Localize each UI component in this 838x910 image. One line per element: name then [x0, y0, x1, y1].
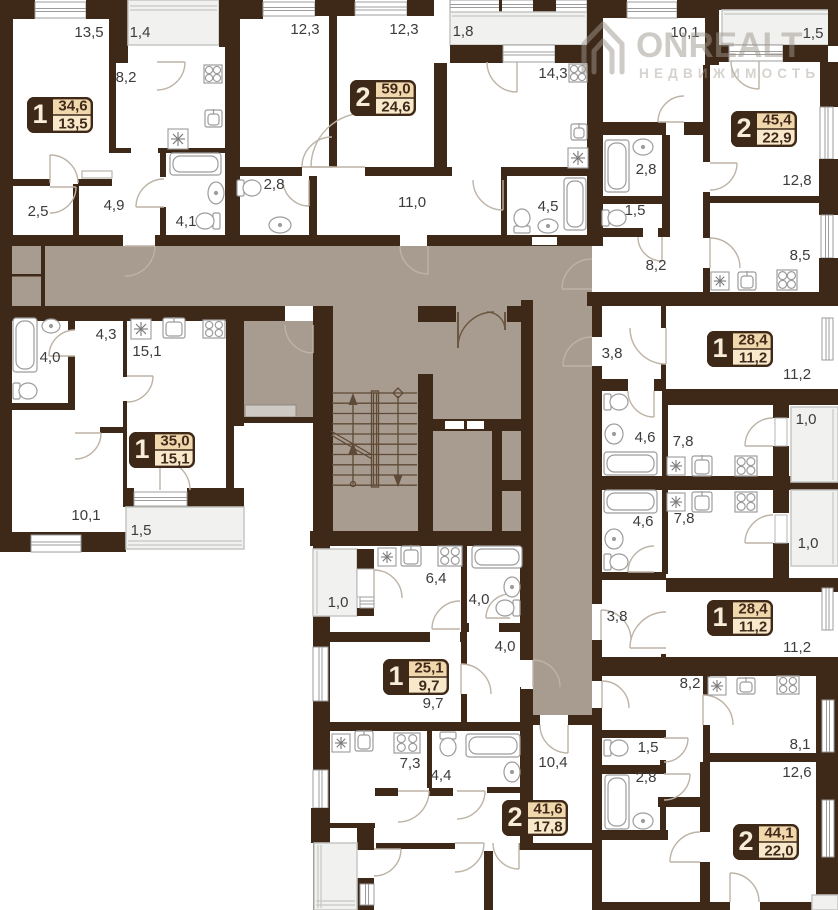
- svg-text:1,4: 1,4: [130, 24, 151, 41]
- svg-text:17,8: 17,8: [533, 818, 562, 835]
- svg-text:12,8: 12,8: [782, 172, 811, 189]
- svg-text:10,1: 10,1: [71, 507, 100, 524]
- svg-text:13,5: 13,5: [58, 115, 87, 132]
- svg-text:2: 2: [355, 82, 370, 112]
- svg-text:28,4: 28,4: [738, 332, 768, 349]
- svg-text:2: 2: [507, 802, 522, 832]
- svg-text:45,4: 45,4: [762, 112, 792, 129]
- svg-text:12,3: 12,3: [389, 21, 418, 38]
- svg-text:9,7: 9,7: [419, 677, 440, 694]
- svg-text:6,4: 6,4: [426, 570, 447, 587]
- svg-text:4,0: 4,0: [469, 591, 490, 608]
- svg-text:2: 2: [738, 826, 753, 856]
- svg-text:14,3: 14,3: [538, 65, 567, 82]
- svg-text:1: 1: [388, 661, 403, 691]
- svg-text:9,7: 9,7: [423, 695, 444, 712]
- svg-text:1,5: 1,5: [638, 739, 659, 756]
- svg-text:10,4: 10,4: [538, 754, 567, 771]
- svg-text:22,9: 22,9: [762, 129, 791, 146]
- svg-text:2: 2: [736, 113, 751, 143]
- svg-text:7,8: 7,8: [674, 510, 695, 527]
- svg-text:НЕДВИЖИМОСТЬ: НЕДВИЖИМОСТЬ: [639, 66, 820, 81]
- svg-text:11,2: 11,2: [783, 366, 811, 383]
- svg-text:1,0: 1,0: [328, 594, 349, 611]
- svg-text:4,6: 4,6: [633, 513, 654, 530]
- svg-text:3,8: 3,8: [607, 608, 628, 625]
- svg-text:35,0: 35,0: [160, 433, 189, 450]
- svg-text:4,0: 4,0: [40, 349, 61, 366]
- svg-text:15,1: 15,1: [160, 450, 189, 467]
- svg-text:1: 1: [134, 434, 149, 464]
- svg-text:4,6: 4,6: [635, 429, 656, 446]
- svg-text:7,3: 7,3: [400, 755, 421, 772]
- svg-text:34,6: 34,6: [58, 98, 87, 115]
- svg-text:15,1: 15,1: [132, 343, 161, 360]
- svg-text:8,1: 8,1: [790, 736, 811, 753]
- svg-text:1,5: 1,5: [803, 25, 824, 42]
- svg-text:59,0: 59,0: [381, 81, 410, 98]
- svg-text:1,5: 1,5: [131, 522, 152, 539]
- svg-text:13,5: 13,5: [74, 24, 103, 41]
- svg-text:11,2: 11,2: [739, 618, 767, 635]
- svg-text:8,5: 8,5: [790, 247, 811, 264]
- svg-text:24,6: 24,6: [381, 98, 410, 115]
- svg-text:44,1: 44,1: [764, 825, 793, 842]
- svg-text:1,0: 1,0: [798, 535, 819, 552]
- svg-text:11,2: 11,2: [739, 349, 767, 366]
- svg-text:1,5: 1,5: [625, 202, 646, 219]
- svg-text:3,8: 3,8: [602, 345, 623, 362]
- svg-text:11,0: 11,0: [398, 194, 426, 211]
- svg-text:11,2: 11,2: [783, 639, 811, 656]
- svg-text:1: 1: [712, 602, 727, 632]
- svg-text:28,4: 28,4: [738, 601, 768, 618]
- svg-text:12,3: 12,3: [290, 21, 319, 38]
- svg-text:12,6: 12,6: [782, 764, 811, 781]
- svg-text:4,1: 4,1: [176, 213, 197, 230]
- svg-text:2,8: 2,8: [636, 161, 657, 178]
- svg-text:4,5: 4,5: [538, 198, 559, 215]
- svg-text:1,8: 1,8: [453, 23, 474, 40]
- svg-text:22,0: 22,0: [764, 842, 793, 859]
- svg-text:1: 1: [712, 333, 727, 363]
- svg-text:ONREALT: ONREALT: [636, 26, 803, 65]
- svg-text:8,2: 8,2: [680, 675, 701, 692]
- svg-text:8,2: 8,2: [646, 257, 667, 274]
- svg-text:2,8: 2,8: [636, 769, 657, 786]
- svg-text:25,1: 25,1: [414, 660, 443, 677]
- svg-text:8,2: 8,2: [116, 69, 137, 86]
- svg-text:4,3: 4,3: [96, 326, 117, 343]
- svg-text:7,8: 7,8: [673, 433, 694, 450]
- svg-text:4,0: 4,0: [495, 638, 516, 655]
- svg-text:2,5: 2,5: [28, 203, 49, 220]
- svg-text:2,8: 2,8: [264, 176, 285, 193]
- svg-text:4,4: 4,4: [431, 767, 452, 784]
- svg-text:4,9: 4,9: [104, 197, 125, 214]
- svg-text:1: 1: [32, 99, 47, 129]
- svg-text:1,0: 1,0: [796, 411, 817, 428]
- svg-text:41,6: 41,6: [533, 801, 562, 818]
